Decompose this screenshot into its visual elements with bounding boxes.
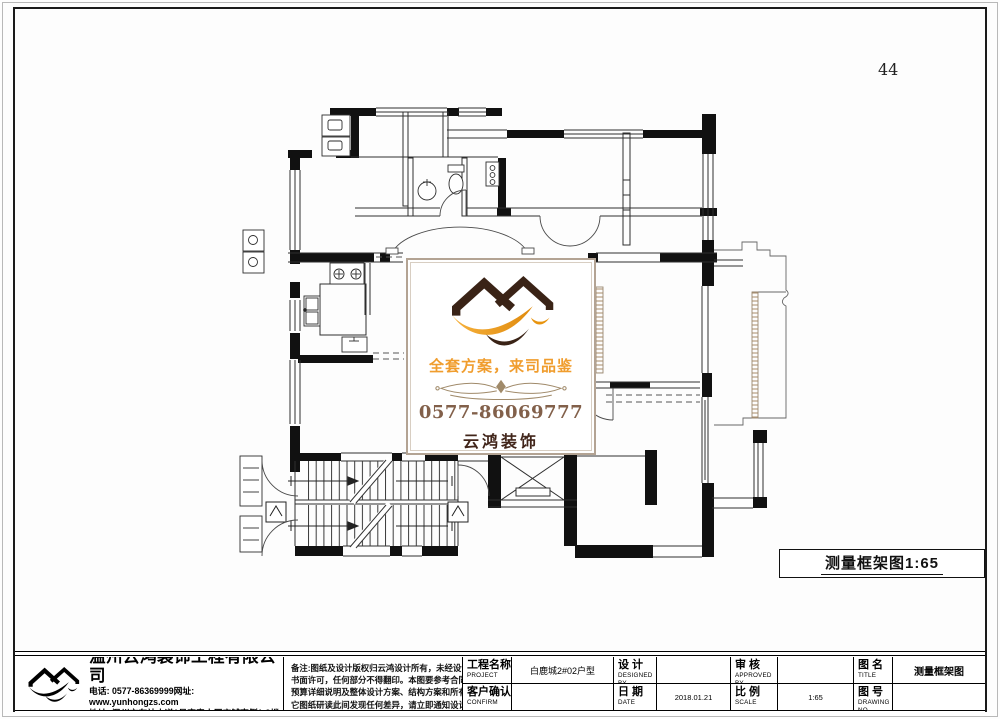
drawing-scale-text: 测量框架图1:65: [821, 552, 943, 575]
company-address-line: 地址: 温州市车站大道1号宏泰大厦店铺南侧1-3楼: [89, 708, 283, 710]
field-project-label: 工程名称 PROJECT: [462, 657, 511, 684]
company-logo-icon: [25, 662, 81, 706]
field-project-value: 白鹿城2#02户型: [511, 657, 613, 684]
remarks-line: 预算详细说明及整体设计方案、结构方案和所有其: [291, 686, 456, 698]
field-drawing-no-label: 图 号 DRAWING NO: [853, 684, 892, 710]
remarks-line: 书面许可，任何部分不得翻印。本图要参考合同、: [291, 674, 456, 686]
title-block-top-line: [15, 655, 985, 656]
drawing-sheet: 44: [0, 0, 1000, 719]
field-date-value: 2018.01.21: [656, 684, 730, 710]
company-name: 温州云鸿装饰工程有限公司: [89, 657, 283, 686]
watermark-slogan: 全套方案，来司品鉴: [408, 355, 594, 376]
field-scale-value: 1:65: [777, 684, 853, 710]
field-title-label: 图 名 TITLE: [853, 657, 892, 684]
field-title-value: 测量框架图: [892, 657, 985, 684]
title-block: 温州云鸿装饰工程有限公司 电话: 0577-86369999网址: www.yu…: [15, 651, 985, 712]
field-confirm-value: [511, 684, 613, 710]
stairs: [266, 459, 468, 548]
remarks-line: 它图纸研读此间发现任何差异，请立即通知设计师。: [291, 699, 456, 710]
field-scale-label: 比 例 SCALE: [730, 684, 777, 710]
ornament-flourish-icon: [421, 379, 581, 401]
field-design-label: 设 计 DESIGNED BY: [613, 657, 656, 684]
balcony-outline: [596, 242, 788, 425]
watermark-phone: 0577-86069777: [408, 402, 594, 423]
company-phone-line: 电话: 0577-86369999网址: www.yunhongzs.com: [89, 686, 283, 708]
bathroom-fixtures: [418, 162, 499, 200]
remarks-line: 备注:图纸及设计版权归云鸿设计所有，未经设计师: [291, 662, 456, 674]
drawing-scale-label: 测量框架图1:65: [779, 549, 985, 578]
elevator-shaft: [501, 457, 564, 500]
field-approve-label: 审 核 APPROVED BY: [730, 657, 777, 684]
watermark-logo-icon: [445, 267, 557, 353]
remarks-section: 备注:图纸及设计版权归云鸿设计所有，未经设计师 书面许可，任何部分不得翻印。本图…: [283, 657, 462, 710]
company-section: 温州云鸿装饰工程有限公司 电话: 0577-86369999网址: www.yu…: [15, 657, 283, 710]
field-approve-value: [777, 657, 853, 684]
field-design-value: [656, 657, 730, 684]
field-date-label: 日 期 DATE: [613, 684, 656, 710]
watermark-box: 全套方案，来司品鉴 0577-86069777 云鸿装饰: [406, 258, 596, 455]
field-drawing-no-value: [892, 684, 985, 710]
field-confirm-label: 客户确认 CONFIRM: [462, 684, 511, 710]
watermark-brand: 云鸿装饰: [408, 428, 594, 452]
